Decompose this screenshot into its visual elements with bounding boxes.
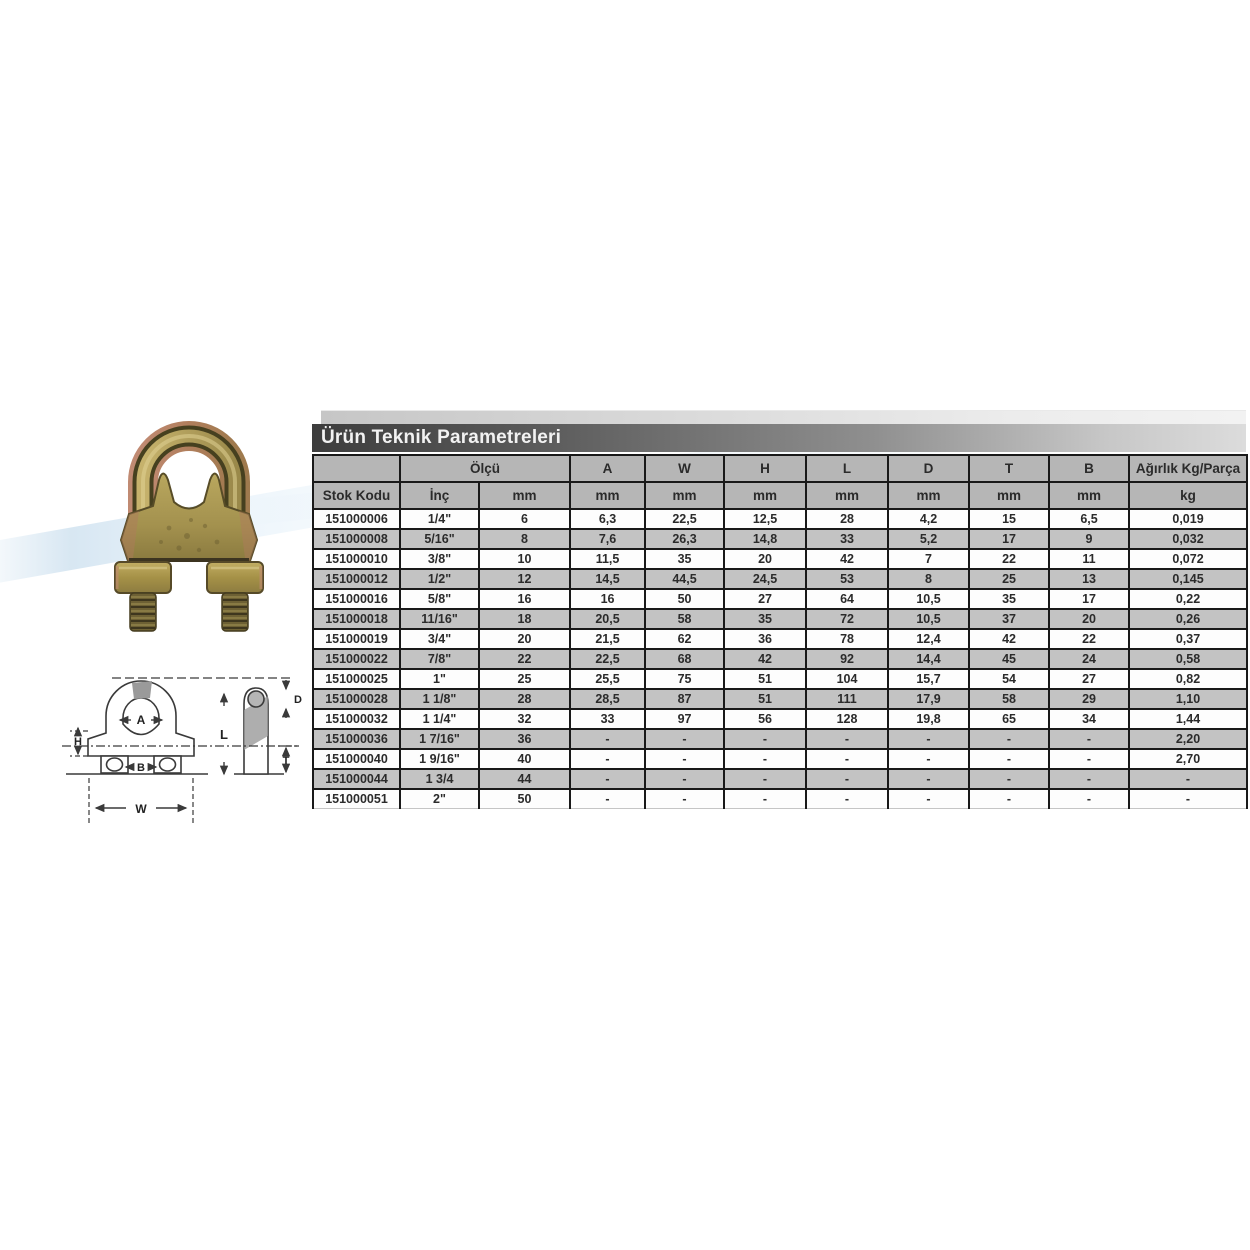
dim-label-b: B [137,762,145,774]
value-cell: 33 [570,709,645,729]
value-cell: 22,5 [645,509,724,529]
value-cell: 44,5 [645,569,724,589]
value-cell: 34 [1049,709,1129,729]
value-cell: 36 [724,629,806,649]
value-cell: 0,019 [1129,509,1247,529]
value-cell: 8 [888,569,969,589]
value-cell: 28 [806,509,888,529]
table-row: 1510000251"2525,5755110415,754270,82 [313,669,1247,689]
value-cell: - [888,769,969,789]
value-cell: 15,7 [888,669,969,689]
value-cell: 75 [645,669,724,689]
value-cell: 20 [724,549,806,569]
value-cell: 0,58 [1129,649,1247,669]
table-row: 15100001811/16"1820,558357210,537200,26 [313,609,1247,629]
value-cell: 24 [1049,649,1129,669]
unit-header-cell: mm [645,482,724,509]
value-cell: 35 [645,549,724,569]
stock-code-cell: 151000025 [313,669,400,689]
dim-label-t: T [283,755,290,767]
value-cell: 45 [969,649,1049,669]
value-cell: 14,8 [724,529,806,549]
value-cell: 50 [479,789,570,809]
value-cell: 87 [645,689,724,709]
value-cell: - [1049,749,1129,769]
table-row: 1510000321 1/4"3233975612819,865341,44 [313,709,1247,729]
value-cell: 12,4 [888,629,969,649]
value-cell: - [888,749,969,769]
value-cell: 20,5 [570,609,645,629]
value-cell: 0,37 [1129,629,1247,649]
value-cell: 51 [724,689,806,709]
value-cell: - [724,749,806,769]
group-header-cell: Ölçü [400,455,570,482]
value-cell: 1/2" [400,569,479,589]
table-row: 1510000103/8"1011,5352042722110,072 [313,549,1247,569]
table-row: 1510000061/4"66,322,512,5284,2156,50,019 [313,509,1247,529]
value-cell: - [645,749,724,769]
value-cell: 33 [806,529,888,549]
group-header-cell: H [724,455,806,482]
stock-code-cell: 151000010 [313,549,400,569]
value-cell: - [645,729,724,749]
table-row: 1510000401 9/16"40-------2,70 [313,749,1247,769]
value-cell: 53 [806,569,888,589]
value-cell: - [888,729,969,749]
stock-code-cell: 151000006 [313,509,400,529]
value-cell: 5/8" [400,589,479,609]
stock-code-cell: 151000016 [313,589,400,609]
value-cell: 32 [479,709,570,729]
value-cell: 10,5 [888,589,969,609]
stock-code-cell: 151000032 [313,709,400,729]
unit-header-cell: mm [724,482,806,509]
table-row: 1510000441 3/444-------- [313,769,1247,789]
value-cell: - [969,729,1049,749]
value-cell: - [806,729,888,749]
value-cell: 56 [724,709,806,729]
unit-header-cell: mm [969,482,1049,509]
group-header-cell: L [806,455,888,482]
value-cell: 2,20 [1129,729,1247,749]
value-cell: 22 [479,649,570,669]
value-cell: 21,5 [570,629,645,649]
value-cell: 18 [479,609,570,629]
group-header-cell [313,455,400,482]
value-cell: 19,8 [888,709,969,729]
unit-header-row: Stok Koduİnçmmmmmmmmmmmmmmmmkg [313,482,1247,509]
unit-header-cell: mm [479,482,570,509]
value-cell: 8 [479,529,570,549]
value-cell: - [806,769,888,789]
group-header-cell: D [888,455,969,482]
value-cell: - [888,789,969,809]
unit-header-cell: mm [888,482,969,509]
value-cell: - [806,789,888,809]
value-cell: - [570,749,645,769]
dimension-drawing: A H B W L D T [56,636,308,838]
unit-header-cell: İnç [400,482,479,509]
unit-header-cell: mm [570,482,645,509]
value-cell: 14,5 [570,569,645,589]
dimension-diagram: A H B W L D T [56,636,308,838]
table-row: 1510000193/4"2021,562367812,442220,37 [313,629,1247,649]
table-row: 1510000227/8"2222,568429214,445240,58 [313,649,1247,669]
value-cell: 4,2 [888,509,969,529]
value-cell: 92 [806,649,888,669]
value-cell: 27 [1049,669,1129,689]
group-header-cell: B [1049,455,1129,482]
gradient-strip [321,410,1246,424]
stock-code-cell: 151000018 [313,609,400,629]
dim-label-a: A [137,713,146,727]
value-cell: 42 [724,649,806,669]
value-cell: 64 [806,589,888,609]
value-cell: 0,072 [1129,549,1247,569]
unit-header-cell: Stok Kodu [313,482,400,509]
value-cell: 11 [1049,549,1129,569]
value-cell: 22 [969,549,1049,569]
value-cell: 0,82 [1129,669,1247,689]
value-cell: 7,6 [570,529,645,549]
value-cell: 22,5 [570,649,645,669]
value-cell: 0,145 [1129,569,1247,589]
page: { "header": { "title": "Ürün Teknik Para… [0,0,1250,1250]
table-row: 1510000281 1/8"2828,5875111117,958291,10 [313,689,1247,709]
table-row: 1510000165/8"161650276410,535170,22 [313,589,1247,609]
value-cell: 1 9/16" [400,749,479,769]
table-head: ÖlçüAWHLDTBAğırlık Kg/ParçaStok Koduİnçm… [313,455,1247,509]
value-cell: - [1049,769,1129,789]
value-cell: 11,5 [570,549,645,569]
section-title: Ürün Teknik Parametreleri [312,424,1246,452]
value-cell: 50 [645,589,724,609]
value-cell: 28 [479,689,570,709]
value-cell: - [724,769,806,789]
group-header-cell: A [570,455,645,482]
table-row: 1510000085/16"87,626,314,8335,21790,032 [313,529,1247,549]
value-cell: 16 [570,589,645,609]
group-header-cell: Ağırlık Kg/Parça [1129,455,1247,482]
group-header-cell: W [645,455,724,482]
value-cell: 20 [1049,609,1129,629]
dim-label-d: D [294,694,302,706]
value-cell: - [570,769,645,789]
value-cell: 111 [806,689,888,709]
value-cell: 24,5 [724,569,806,589]
spec-table: ÖlçüAWHLDTBAğırlık Kg/ParçaStok Koduİnçm… [312,454,1248,809]
value-cell: 27 [724,589,806,609]
value-cell: 5,2 [888,529,969,549]
stock-code-cell: 151000036 [313,729,400,749]
stock-code-cell: 151000028 [313,689,400,709]
value-cell: 104 [806,669,888,689]
stock-code-cell: 151000022 [313,649,400,669]
value-cell: 22 [1049,629,1129,649]
value-cell: 10 [479,549,570,569]
value-cell: 16 [479,589,570,609]
stock-code-cell: 151000051 [313,789,400,809]
value-cell: - [570,789,645,809]
value-cell: 26,3 [645,529,724,549]
table-row: 1510000512"50-------- [313,789,1247,809]
value-cell: 1 1/4" [400,709,479,729]
dim-label-w: W [135,802,147,816]
value-cell: - [1129,789,1247,809]
value-cell: 28,5 [570,689,645,709]
value-cell: - [806,749,888,769]
value-cell: 29 [1049,689,1129,709]
spec-panel: Ürün Teknik Parametreleri ÖlçüAWHLDTBAğı… [312,410,1246,809]
value-cell: 37 [969,609,1049,629]
value-cell: - [645,789,724,809]
value-cell: 35 [969,589,1049,609]
value-cell: 0,26 [1129,609,1247,629]
value-cell: 1,44 [1129,709,1247,729]
value-cell: 1,10 [1129,689,1247,709]
value-cell: 17 [1049,589,1129,609]
group-header-cell: T [969,455,1049,482]
unit-header-cell: mm [1049,482,1129,509]
value-cell: - [724,729,806,749]
value-cell: 15 [969,509,1049,529]
value-cell: 1 3/4 [400,769,479,789]
value-cell: 0,22 [1129,589,1247,609]
table-row: 1510000361 7/16"36-------2,20 [313,729,1247,749]
value-cell: 35 [724,609,806,629]
dim-label-l: L [220,727,228,742]
wire-rope-clip-image [103,408,275,636]
value-cell: - [969,769,1049,789]
value-cell: 2" [400,789,479,809]
value-cell: 58 [969,689,1049,709]
value-cell: 36 [479,729,570,749]
value-cell: 3/8" [400,549,479,569]
value-cell: 54 [969,669,1049,689]
value-cell: - [724,789,806,809]
stock-code-cell: 151000040 [313,749,400,769]
value-cell: 7 [888,549,969,569]
value-cell: 62 [645,629,724,649]
stock-code-cell: 151000012 [313,569,400,589]
dim-label-h: H [74,736,82,748]
value-cell: 6,5 [1049,509,1129,529]
value-cell: 0,032 [1129,529,1247,549]
value-cell: 17 [969,529,1049,549]
value-cell: 44 [479,769,570,789]
value-cell: - [1049,789,1129,809]
group-header-row: ÖlçüAWHLDTBAğırlık Kg/Parça [313,455,1247,482]
value-cell: - [570,729,645,749]
value-cell: 1 1/8" [400,689,479,709]
value-cell: 97 [645,709,724,729]
stock-code-cell: 151000008 [313,529,400,549]
table-row: 1510000121/2"1214,544,524,553825130,145 [313,569,1247,589]
value-cell: 12,5 [724,509,806,529]
value-cell: 6,3 [570,509,645,529]
value-cell: 2,70 [1129,749,1247,769]
value-cell: 13 [1049,569,1129,589]
value-cell: 3/4" [400,629,479,649]
value-cell: 11/16" [400,609,479,629]
value-cell: - [1049,729,1129,749]
value-cell: 12 [479,569,570,589]
value-cell: 68 [645,649,724,669]
value-cell: 1" [400,669,479,689]
value-cell: 5/16" [400,529,479,549]
value-cell: 40 [479,749,570,769]
product-photo [103,408,275,636]
value-cell: - [645,769,724,789]
value-cell: 42 [806,549,888,569]
unit-header-cell: mm [806,482,888,509]
value-cell: 1 7/16" [400,729,479,749]
value-cell: 128 [806,709,888,729]
value-cell: - [1129,769,1247,789]
unit-header-cell: kg [1129,482,1247,509]
value-cell: 14,4 [888,649,969,669]
value-cell: 10,5 [888,609,969,629]
table-body: 1510000061/4"66,322,512,5284,2156,50,019… [313,509,1247,809]
value-cell: 65 [969,709,1049,729]
value-cell: 25 [479,669,570,689]
value-cell: 58 [645,609,724,629]
value-cell: 7/8" [400,649,479,669]
value-cell: 9 [1049,529,1129,549]
value-cell: 51 [724,669,806,689]
value-cell: - [969,789,1049,809]
value-cell: 1/4" [400,509,479,529]
value-cell: 25,5 [570,669,645,689]
value-cell: - [969,749,1049,769]
stock-code-cell: 151000019 [313,629,400,649]
stock-code-cell: 151000044 [313,769,400,789]
value-cell: 78 [806,629,888,649]
value-cell: 17,9 [888,689,969,709]
value-cell: 20 [479,629,570,649]
value-cell: 25 [969,569,1049,589]
value-cell: 6 [479,509,570,529]
value-cell: 72 [806,609,888,629]
value-cell: 42 [969,629,1049,649]
